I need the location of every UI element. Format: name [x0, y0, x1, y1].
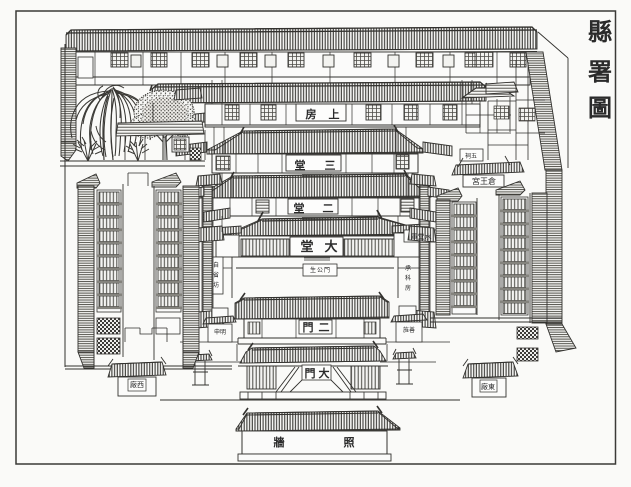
svg-text:庫堂水: 庫堂水	[411, 232, 432, 241]
svg-text:生: 生	[310, 266, 316, 274]
svg-text:圖: 圖	[588, 96, 612, 122]
svg-text:牆: 牆	[274, 435, 285, 449]
svg-text:大: 大	[324, 239, 337, 254]
svg-text:公: 公	[317, 267, 323, 274]
svg-text:申明: 申明	[214, 328, 226, 336]
svg-text:科: 科	[405, 274, 411, 282]
svg-text:大: 大	[319, 366, 330, 380]
svg-text:二: 二	[319, 322, 330, 334]
svg-text:門: 門	[303, 321, 314, 334]
svg-text:承: 承	[405, 264, 411, 272]
svg-text:門: 門	[324, 267, 330, 274]
svg-text:旌善: 旌善	[403, 326, 415, 334]
svg-text:堂: 堂	[300, 239, 313, 254]
svg-text:堂: 堂	[295, 158, 306, 172]
svg-text:祠五: 祠五	[465, 152, 477, 160]
svg-text:署: 署	[587, 60, 612, 86]
svg-text:房: 房	[405, 284, 411, 292]
svg-text:廠西: 廠西	[130, 380, 144, 389]
svg-text:門: 門	[305, 367, 316, 380]
svg-text:坊: 坊	[213, 281, 219, 289]
svg-text:堂: 堂	[294, 201, 305, 215]
svg-text:照: 照	[344, 436, 355, 449]
svg-text:二: 二	[323, 203, 334, 215]
svg-text:房: 房	[306, 107, 317, 121]
svg-text:三: 三	[325, 159, 336, 172]
svg-text:上: 上	[329, 107, 340, 121]
svg-text:宮王倉: 宮王倉	[472, 176, 496, 186]
svg-text:廠東: 廠東	[481, 382, 495, 391]
svg-text:省: 省	[213, 271, 219, 279]
svg-text:縣: 縣	[588, 19, 612, 46]
svg-text:自: 自	[213, 261, 219, 269]
